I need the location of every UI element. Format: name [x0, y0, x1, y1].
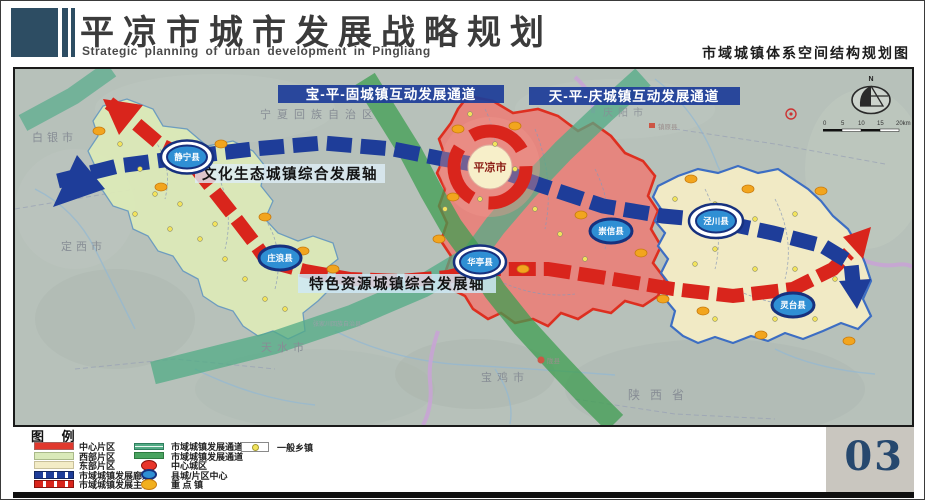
page-number-block: 03 — [826, 427, 914, 492]
logo-square — [11, 8, 58, 57]
neighbor-label-dingxi: 定西市 — [61, 239, 106, 253]
neighbor-label-zhenyuan: 镇原县 — [658, 122, 678, 131]
legend-swatch-corridor — [34, 471, 74, 479]
legend-swatch-central-district — [34, 442, 74, 450]
legend-symbol-ordinary-township-box — [241, 442, 269, 452]
sheet-title: 市域城镇体系空间结构规划图 — [702, 43, 910, 63]
map-frame: 平凉市 宝-平-固城镇互动发展通道 天-平-庆城镇互动发展通道 文化生态城镇综合… — [13, 67, 914, 427]
legend-symbol-key-town — [141, 479, 157, 490]
scale-tick: 20km — [896, 121, 911, 127]
planning-sheet: 平凉市城市发展战略规划 Strategic planning of urban … — [0, 0, 925, 500]
central-city-label: 平凉市 — [474, 160, 507, 174]
scale-tick: 10 — [858, 121, 865, 127]
county-label-huating: 华亭县 — [467, 257, 493, 267]
logo-bar — [71, 8, 75, 57]
axis-label-culture-ecology: 文化生态城镇综合发展轴 — [202, 165, 378, 183]
legend-label: 重 点 镇 — [171, 478, 203, 491]
neighbor-label-baiyin: 白银市 — [32, 130, 77, 144]
legend-swatch-east-district — [34, 461, 74, 469]
neighbor-label-zhangjiachuan: 张家川回族自治县 — [313, 320, 361, 328]
axis-label-special-resource: 特色资源城镇综合发展轴 — [309, 275, 485, 293]
neighbor-label-shaanxi: 陕西省 — [628, 387, 694, 402]
neighbor-label-baoji: 宝鸡市 — [481, 370, 529, 384]
page-subtitle: Strategic planning of urban development … — [82, 44, 431, 58]
page-number: 03 — [844, 433, 904, 480]
legend-swatch-channel-teal — [134, 443, 164, 450]
corridor-label-tian-ping-qing: 天-平-庆城镇互动发展通道 — [549, 88, 720, 104]
legend-label: 一般乡镇 — [277, 441, 313, 454]
neighbor-label-ningxia: 宁夏回族自治区 — [260, 107, 379, 121]
scale-tick: 15 — [877, 121, 884, 127]
planning-map: 平凉市 宝-平-固城镇互动发展通道 天-平-庆城镇互动发展通道 文化生态城镇综合… — [15, 69, 912, 425]
neighbor-label-longxian: 陇县 — [547, 356, 561, 365]
bottom-rule — [13, 492, 914, 498]
legend-swatch-west-district — [34, 452, 74, 460]
county-label-chongxin: 崇信县 — [598, 226, 624, 236]
county-label-jingchuan: 泾川县 — [703, 216, 729, 226]
compass: N — [852, 76, 890, 114]
logo-bar — [62, 8, 68, 57]
legend-swatch-channel-green — [134, 452, 164, 459]
corridor-label-bao-ping-gu: 宝-平-固城镇互动发展通道 — [306, 86, 477, 102]
legend-swatch-main-axis — [34, 480, 74, 488]
compass-north-label: N — [868, 76, 873, 83]
county-label-jingning: 静宁县 — [174, 152, 200, 162]
legend-symbol-ordinary-township-dot — [252, 444, 259, 451]
neighbor-label-tianshui: 天水市 — [261, 340, 309, 354]
neighbor-label-qingyang: 庆阳市 — [603, 106, 648, 119]
county-label-lingtai: 灵台县 — [780, 300, 806, 310]
county-label-zhuanglang: 庄浪县 — [267, 253, 293, 263]
